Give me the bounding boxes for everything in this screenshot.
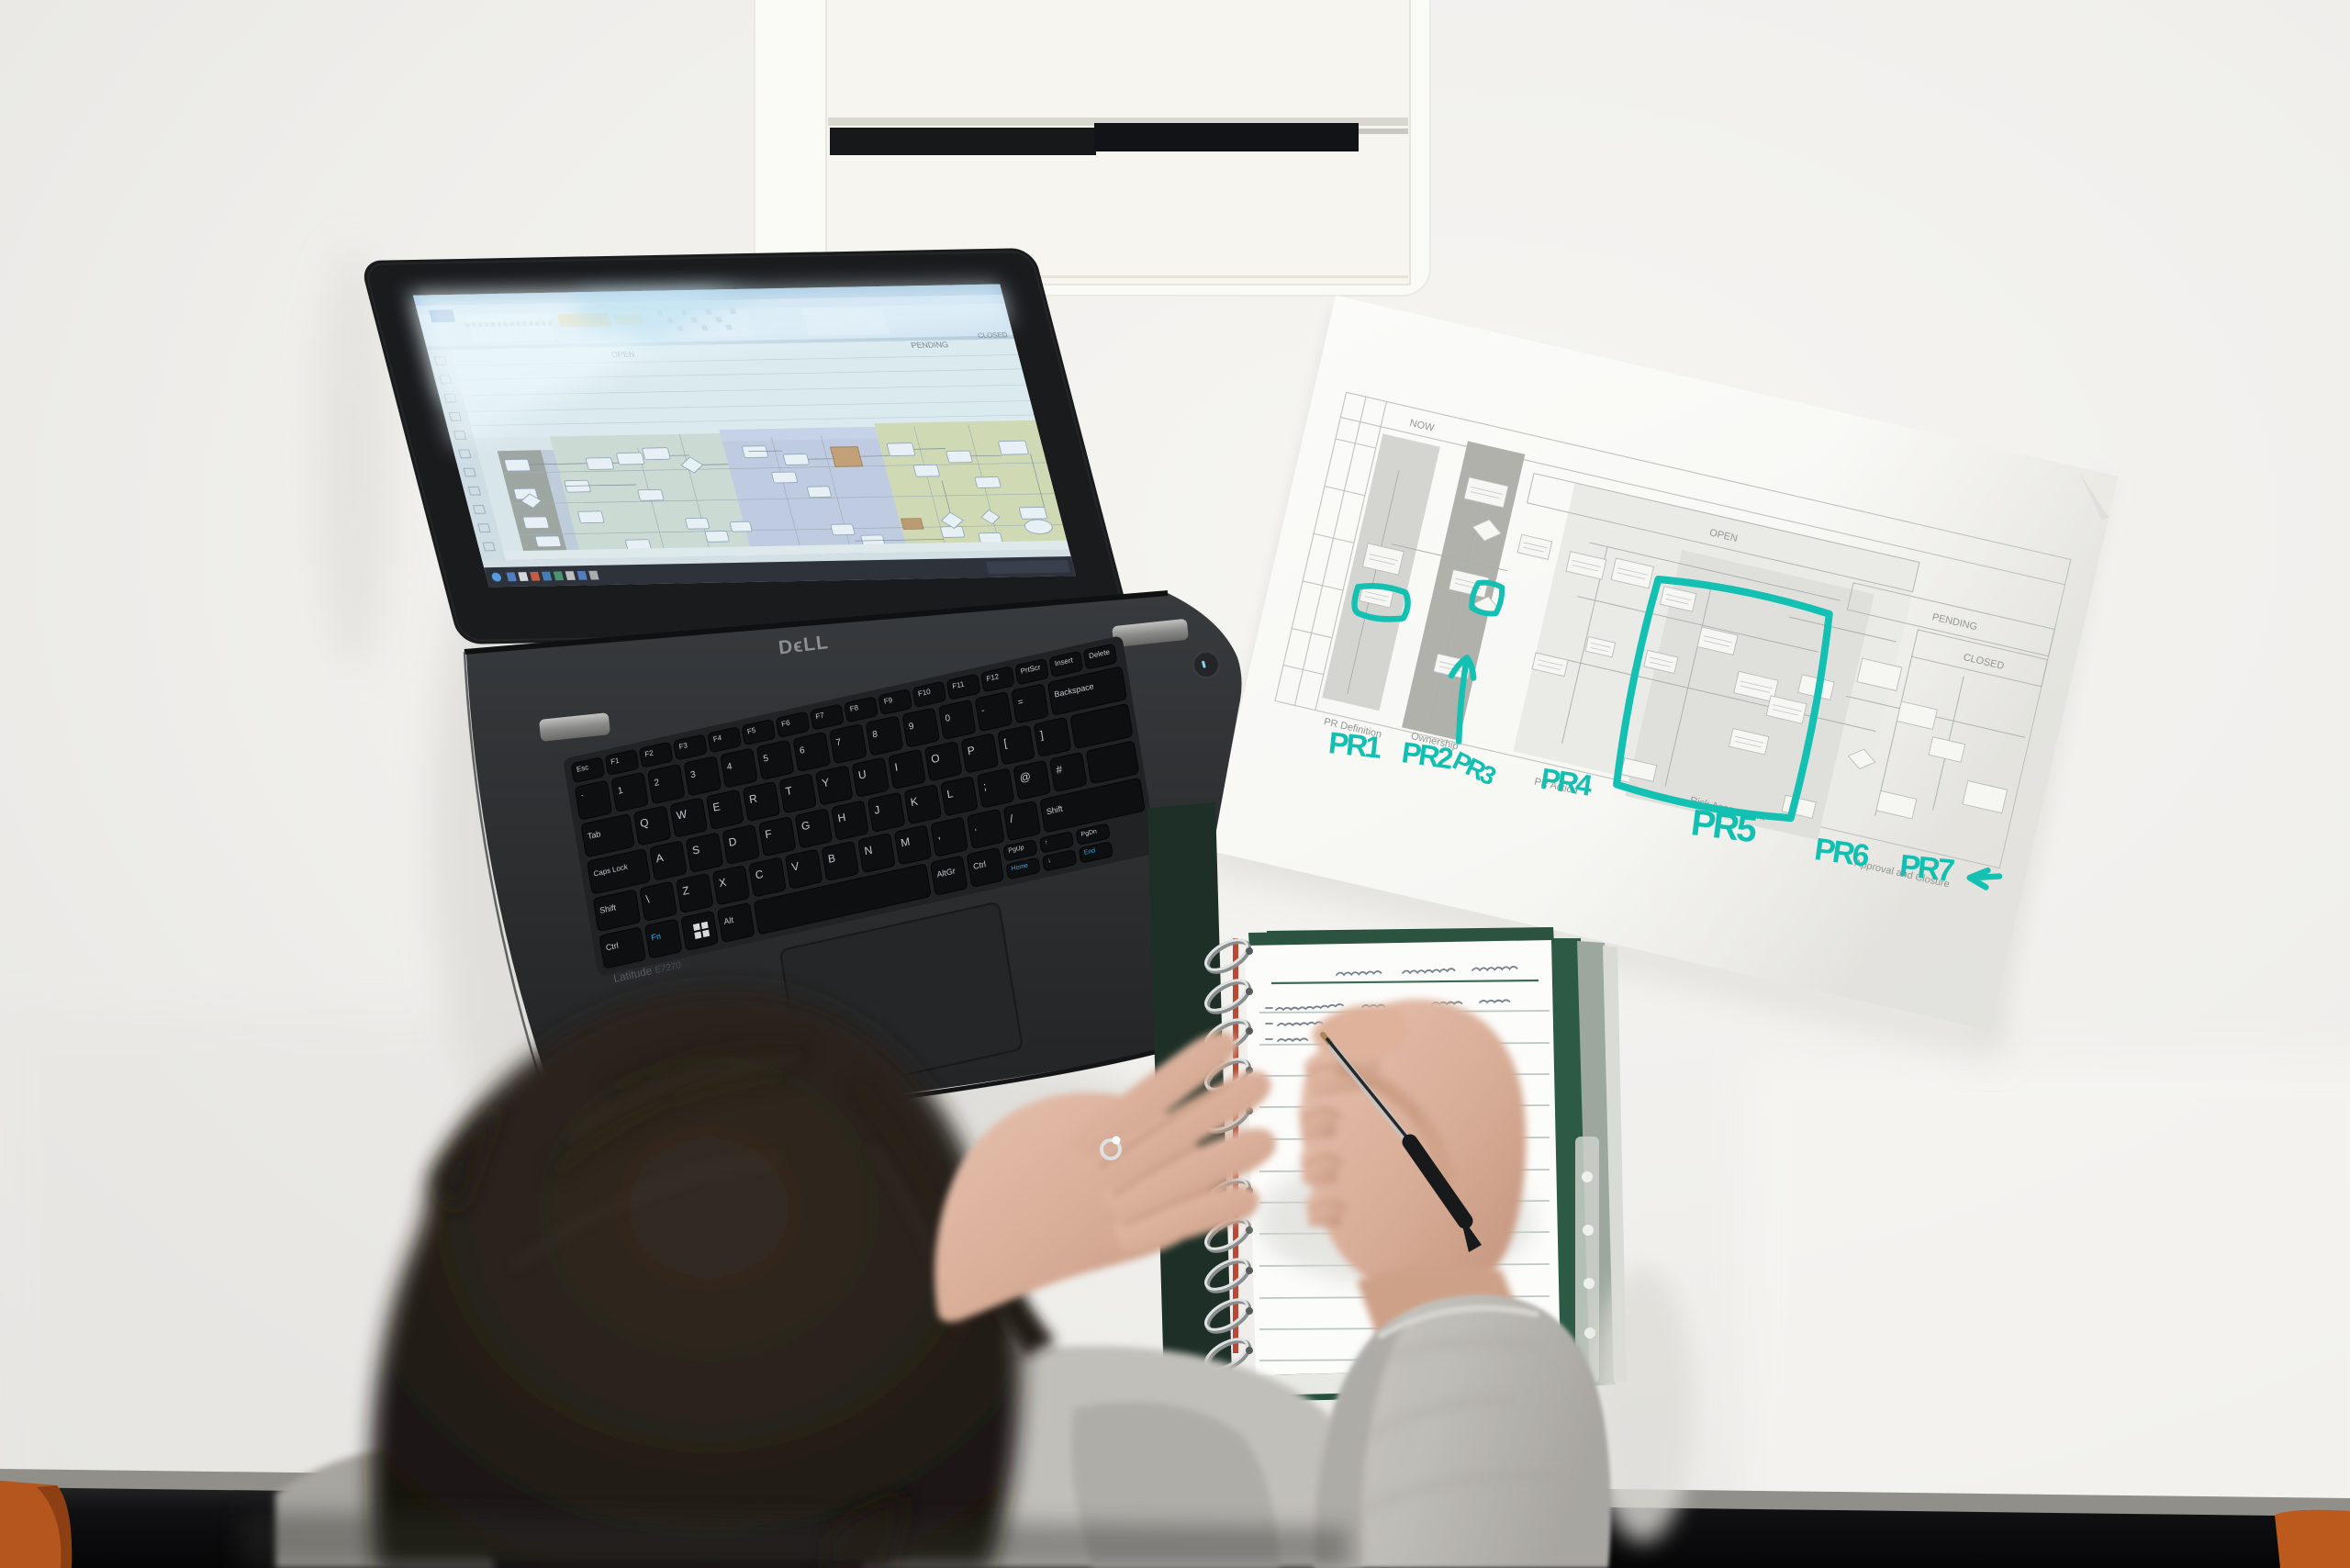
svg-text:PR1: PR1 <box>1327 725 1383 765</box>
svg-text:@: @ <box>1019 769 1032 784</box>
svg-text:PR7: PR7 <box>1897 848 1955 889</box>
svg-text:PR2: PR2 <box>1400 735 1455 775</box>
svg-text:PR5: PR5 <box>1689 802 1759 850</box>
